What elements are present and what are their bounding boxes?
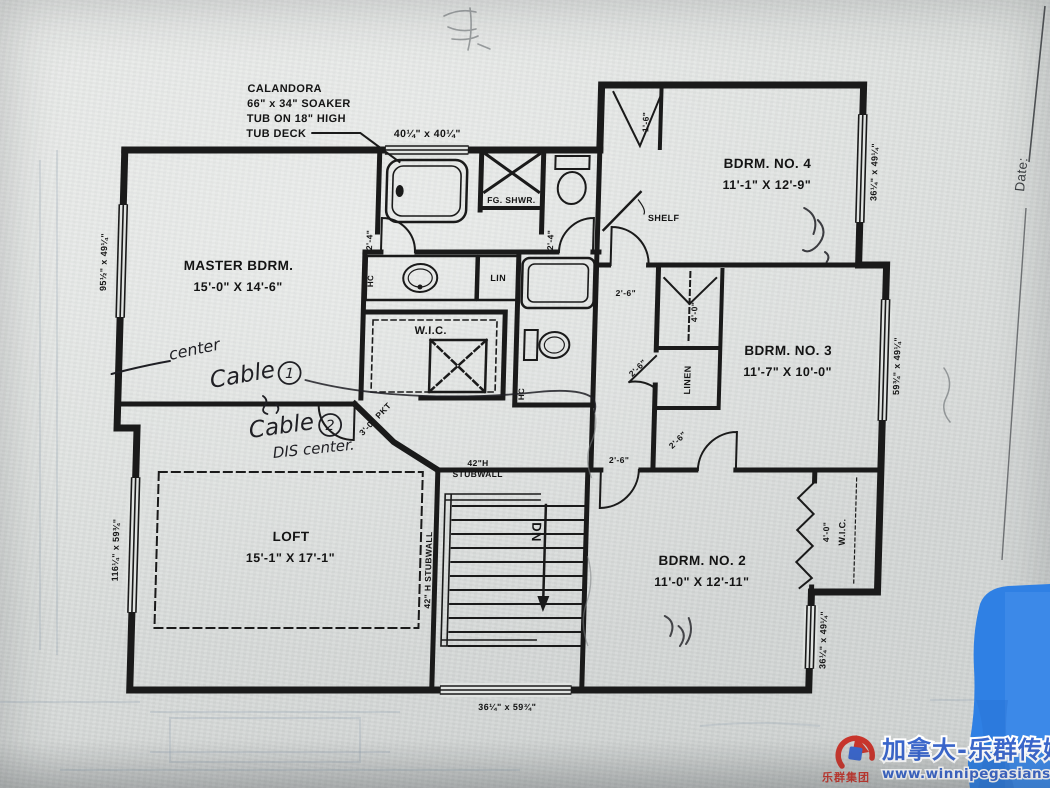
door-hall-bath (559, 218, 594, 252)
stairs (441, 494, 585, 646)
stub-wall-lines (441, 494, 540, 646)
dn-arrow-line (543, 505, 546, 598)
wic-bdrm2-accordion-door (796, 482, 815, 588)
floorplan-drawing: CALANDORA 66" x 34" SOAKER TUB ON 18" HI… (86, 83, 910, 712)
door-label-hall-bath: 2'-4" (545, 230, 556, 250)
bdrm4-corner-shelf (604, 192, 645, 230)
door-label-master-bath: 2'-4" (364, 230, 375, 250)
hand-cable1-label: Cable (208, 357, 276, 394)
door-label-bdrm3: 2'-6" (667, 429, 689, 450)
floorplan-svg: Date: (0, 0, 1050, 788)
window-bdrm4-right (853, 115, 870, 222)
window-label-stairs-bottom: 36¼" x 59¾" (478, 702, 536, 712)
hall-tub (521, 258, 594, 308)
shelf-label: SHELF (648, 213, 680, 223)
wic-master-label: W.I.C. (414, 325, 447, 337)
pencil-scribble-right (944, 368, 950, 422)
watermark-logo-caption: 乐群集团 (822, 770, 870, 784)
door-label-closet-bdrm3: 4'-0" (689, 302, 700, 322)
shelf-leader-line (638, 200, 645, 214)
room-dims-loft: 15'-1" X 17'-1" (246, 551, 335, 565)
soaker-tub (386, 160, 468, 222)
room-dims-master: 15'-0" X 14'-6" (193, 280, 282, 294)
paper-bleed-through-lines (0, 150, 1005, 770)
room-label-loft: LOFT (272, 529, 310, 544)
date-label: Date: (1012, 157, 1031, 193)
wic-bdrm2-label: W.I.C. (837, 519, 848, 546)
window-tub (386, 143, 468, 157)
door-bdrm4 (611, 227, 650, 265)
logo-square (848, 746, 863, 761)
master-vanity (366, 256, 477, 300)
note-line3: TUB ON 18" HIGH (247, 113, 347, 125)
door-bdrm3 (698, 432, 737, 470)
door-label-bdrm2: 2'-6" (609, 455, 630, 465)
room-dims-bdrm3: 11'-7" X 10'-0" (743, 365, 832, 379)
pen-scribble-bdrm2 (664, 616, 691, 646)
window-loft-left (125, 478, 143, 612)
linen-label: LINEN (682, 365, 693, 394)
window-bdrm2-right (802, 606, 818, 668)
window-stairs-bottom (441, 683, 571, 697)
window-label-tub: 40¼" x 40¼" (394, 128, 461, 140)
closet-bdrm4-chevron (612, 92, 662, 146)
window-label-bdrm3-right: 59¾" x 49¼" (891, 337, 903, 395)
titleblock-edge: Date: (1002, 6, 1045, 560)
door-label-pocket: 3'-0" PKT (357, 400, 393, 437)
hand-center-label: center (167, 334, 222, 364)
door-label-wic-bdrm2: 4'-0" (821, 522, 832, 542)
note-line4: TUB DECK (246, 128, 306, 140)
lin-label: LIN (490, 273, 506, 283)
hand-digit-1: 1 (285, 366, 294, 382)
pencil-scribble-top (444, 8, 490, 50)
room-label-bdrm2: BDRM. NO. 2 (658, 553, 746, 568)
window-master-left (113, 205, 130, 317)
dn-label: DN (529, 522, 545, 542)
watermark-brand: 加拿大-乐群传媒 (882, 736, 1050, 764)
window-label-bdrm4-right: 36¼" x 49¼" (868, 143, 880, 201)
hand-cable2-label: Cable (248, 409, 316, 444)
shower-label: FG. SHWR. (487, 195, 536, 205)
toilet-powder (554, 156, 589, 204)
hand-dis-center-label: DIS center. (272, 436, 355, 462)
shower (485, 154, 540, 192)
titleblock-line-top (1029, 6, 1045, 162)
door-bdrm2 (600, 470, 639, 508)
room-dims-bdrm4: 11'-1" X 12'-9" (722, 178, 811, 192)
window-label-bdrm2-right: 36¼" x 49¼" (817, 611, 829, 669)
note-line2: 66" x 34" SOAKER (247, 98, 351, 110)
floorplan-photo: Date: (0, 0, 1050, 788)
room-label-bdrm4: BDRM. NO. 4 (723, 156, 811, 171)
room-label-bdrm3: BDRM. NO. 3 (744, 343, 832, 358)
watermark-logo (838, 735, 872, 766)
hc-master-label: HC (366, 275, 375, 287)
door-label-bdrm4: 2'-6" (616, 288, 637, 298)
window-label-loft-left: 116¼" x 59¾" (110, 519, 122, 582)
pen-scribble-bdrm4 (803, 208, 830, 262)
loft-dashed-outline (154, 472, 422, 628)
titleblock-line-bottom (1002, 208, 1026, 560)
window-label-master-left: 95½" x 49¼" (98, 233, 110, 291)
stubwall-label-line1: 42"H (467, 458, 489, 468)
tub-faucet (395, 185, 403, 197)
watermark: 乐群集团 加拿大-乐群传媒 www.winnipegasians.com (822, 735, 1050, 784)
watermark-url: www.winnipegasians.com (882, 766, 1050, 782)
door-label-closet-bdrm4: 1'-6" (640, 112, 651, 132)
wic-bdrm2-shelf-dashed (854, 478, 857, 585)
window-bdrm3-right (875, 300, 892, 420)
room-dims-bdrm2: 11'-0" X 12'-11" (654, 575, 749, 589)
toilet-hall-bath (524, 330, 570, 360)
note-line1: CALANDORA (247, 83, 322, 95)
stair-treads (449, 506, 585, 646)
hand-digit-2: 2 (325, 418, 334, 434)
room-label-master: MASTER BDRM. (183, 258, 293, 273)
stubwall-label-line2: STUBWALL (452, 469, 503, 479)
